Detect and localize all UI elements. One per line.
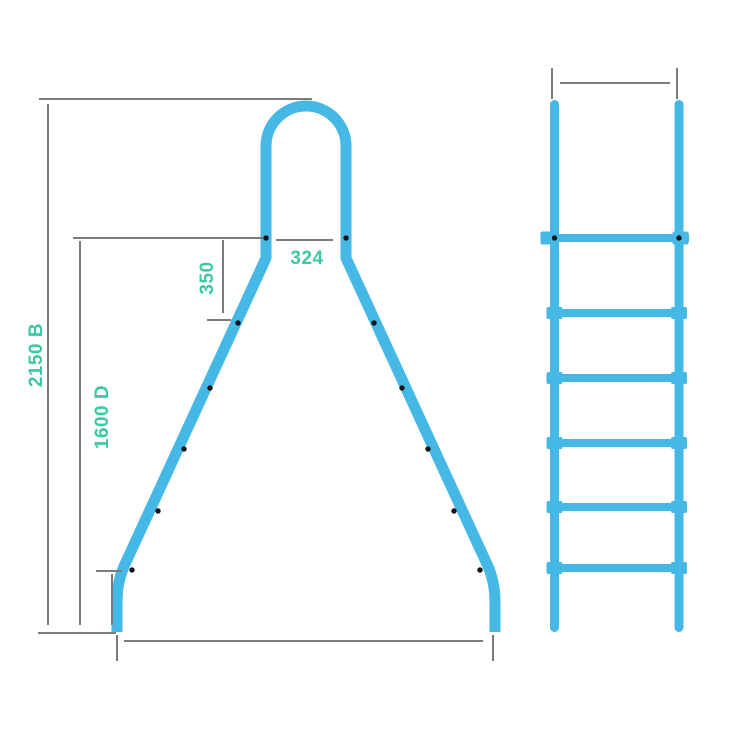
rung-cap bbox=[547, 372, 563, 384]
rung-bolt-dot bbox=[552, 235, 557, 240]
step-marker-dot bbox=[181, 446, 186, 451]
dimension-lines bbox=[38, 68, 677, 661]
side-view bbox=[541, 105, 690, 628]
rung-cap bbox=[547, 562, 563, 574]
rung-bar bbox=[554, 503, 680, 511]
ladder-technical-diagram: 2150 B 1600 D 350 324 bbox=[0, 0, 750, 750]
rung-cap bbox=[671, 562, 687, 574]
step-marker-dot bbox=[235, 320, 240, 325]
step-marker-dot bbox=[451, 508, 456, 513]
step-marker-dot bbox=[155, 508, 160, 513]
side-rung bbox=[547, 501, 688, 513]
front-view bbox=[117, 106, 495, 632]
side-rung bbox=[547, 437, 688, 449]
step-marker-dot bbox=[263, 235, 268, 240]
rung-bolt-dot bbox=[676, 235, 681, 240]
rung-bar bbox=[554, 564, 680, 572]
step-marker-dot bbox=[207, 385, 212, 390]
rung-cap bbox=[547, 437, 563, 449]
step-marker-dot bbox=[371, 320, 376, 325]
rung-bar bbox=[545, 234, 689, 242]
dimension-labels: 2150 B 1600 D 350 324 bbox=[26, 248, 324, 449]
rung-bar bbox=[554, 439, 680, 447]
label-top-width: 324 bbox=[290, 248, 323, 269]
rung-bar bbox=[554, 309, 680, 317]
rung-cap bbox=[671, 307, 687, 319]
side-rung bbox=[547, 372, 688, 384]
rung-cap bbox=[547, 501, 563, 513]
label-leg-section-height: 1600 D bbox=[92, 385, 113, 449]
rung-cap bbox=[671, 501, 687, 513]
rung-cap bbox=[671, 372, 687, 384]
label-top-step-offset: 350 bbox=[197, 261, 218, 294]
side-rung bbox=[547, 307, 688, 319]
side-rung-top bbox=[541, 232, 690, 245]
step-marker-dot bbox=[399, 385, 404, 390]
front-ladder-outline bbox=[117, 106, 495, 632]
rung-cap bbox=[547, 307, 563, 319]
label-overall-height: 2150 B bbox=[26, 323, 47, 387]
diagram-canvas: 2150 B 1600 D 350 324 bbox=[0, 0, 750, 750]
step-marker-dot bbox=[343, 235, 348, 240]
step-marker-dot bbox=[129, 567, 134, 572]
side-rung bbox=[547, 562, 688, 574]
step-marker-dot bbox=[425, 446, 430, 451]
rung-bar bbox=[554, 374, 680, 382]
step-marker-dot bbox=[477, 567, 482, 572]
rung-cap bbox=[671, 437, 687, 449]
